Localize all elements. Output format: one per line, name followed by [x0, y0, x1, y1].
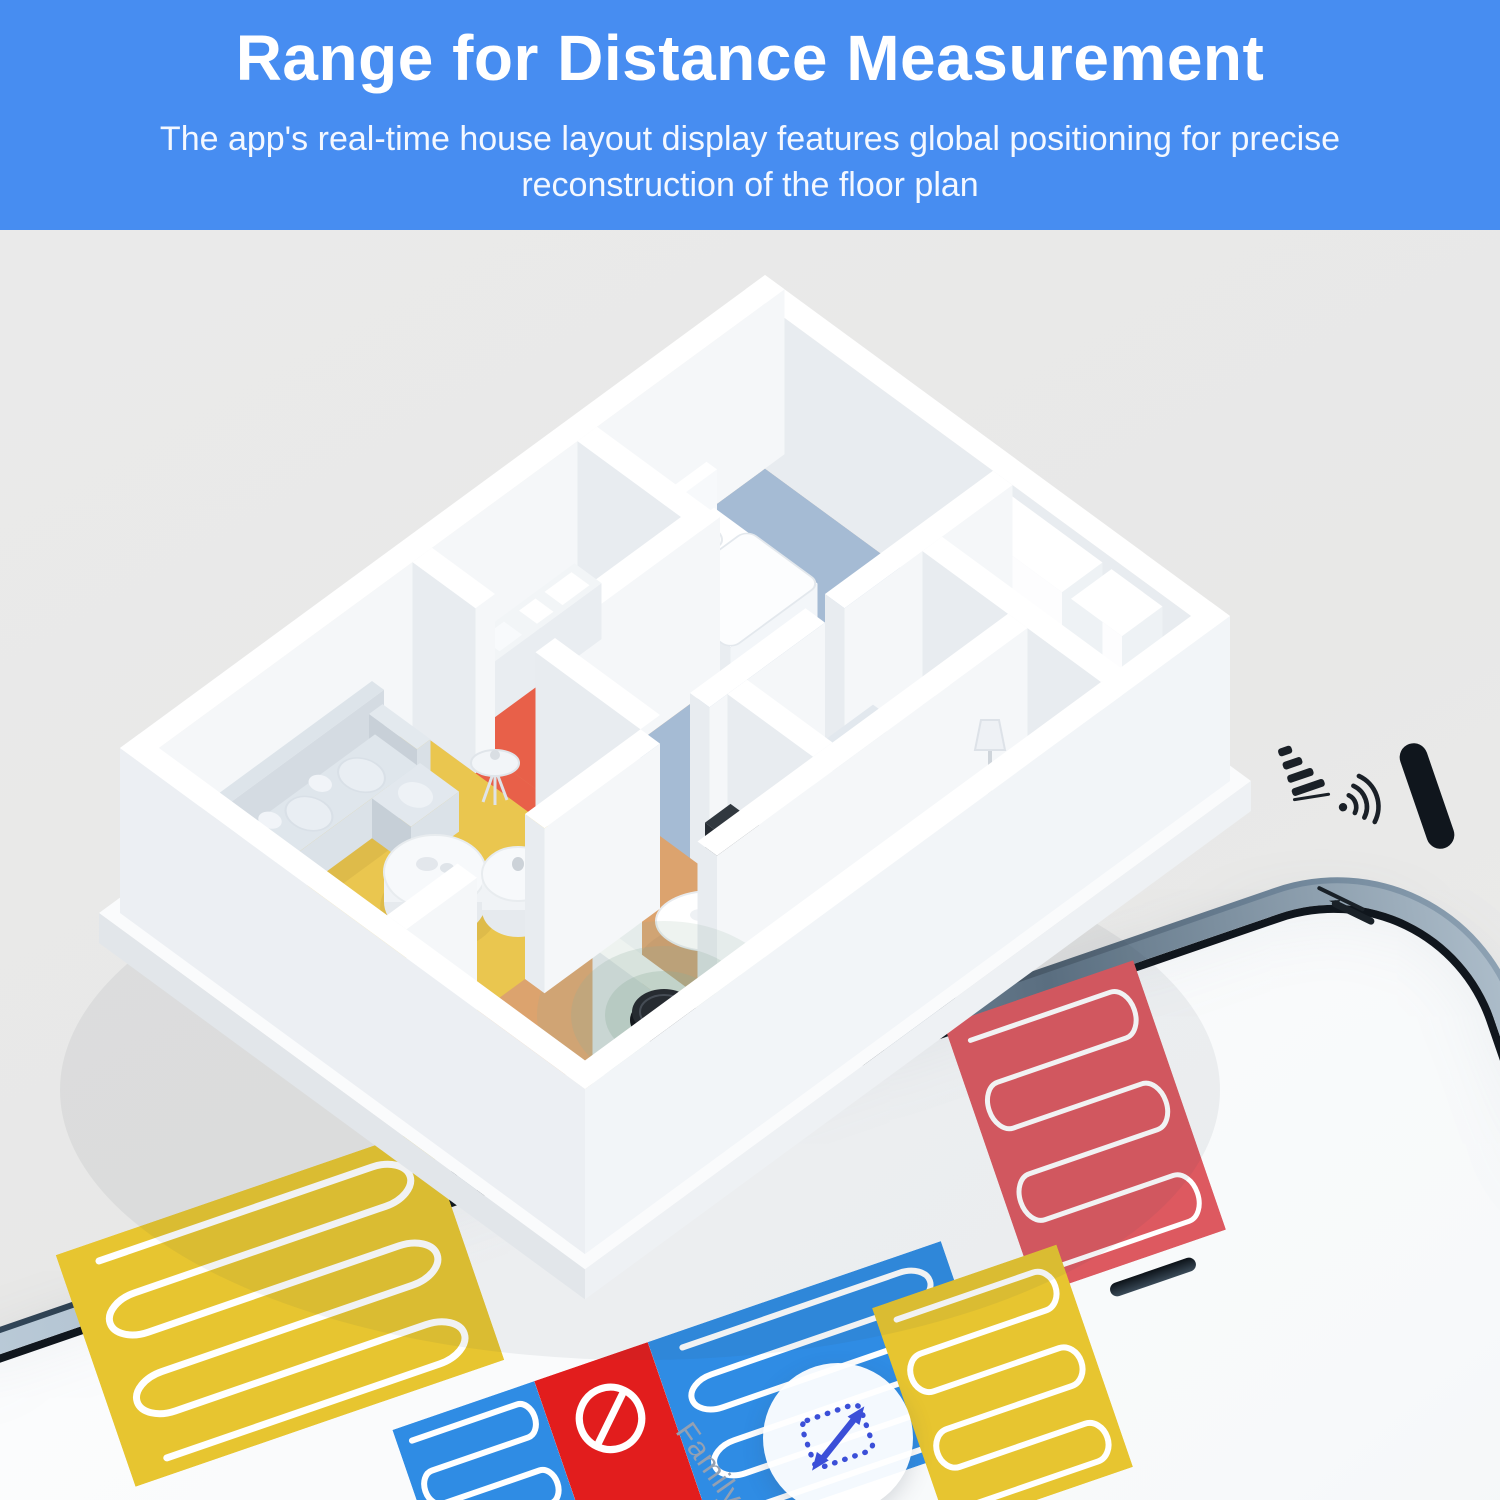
- banner: Range for Distance Measurement The app's…: [0, 0, 1500, 230]
- page-title: Range for Distance Measurement: [236, 21, 1265, 95]
- app-map-overlay: Family: [0, 230, 1500, 1500]
- scene: Family: [0, 230, 1500, 1500]
- carpet-zone-red-right: [944, 960, 1226, 1295]
- page-subtitle: The app's real-time house layout display…: [120, 117, 1380, 209]
- cellular-signal-icon: [1273, 735, 1335, 810]
- measure-area-icon: [780, 1385, 897, 1492]
- camera-notch: [1396, 739, 1458, 852]
- pencil-icon: [1309, 859, 1398, 948]
- wifi-icon: [1326, 768, 1390, 837]
- measure-area-button[interactable]: [763, 1363, 913, 1500]
